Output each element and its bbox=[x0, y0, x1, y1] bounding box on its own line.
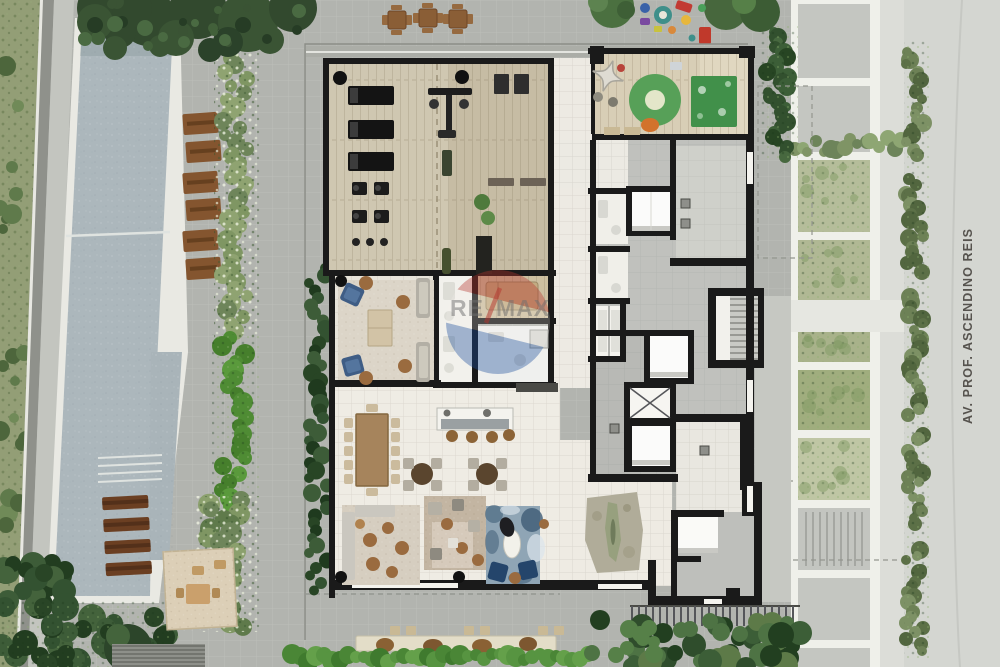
svg-text:MAX: MAX bbox=[496, 295, 550, 321]
svg-text:AV. PROF. ASCENDINO REIS: AV. PROF. ASCENDINO REIS bbox=[961, 228, 975, 424]
svg-text:RE: RE bbox=[450, 295, 484, 321]
